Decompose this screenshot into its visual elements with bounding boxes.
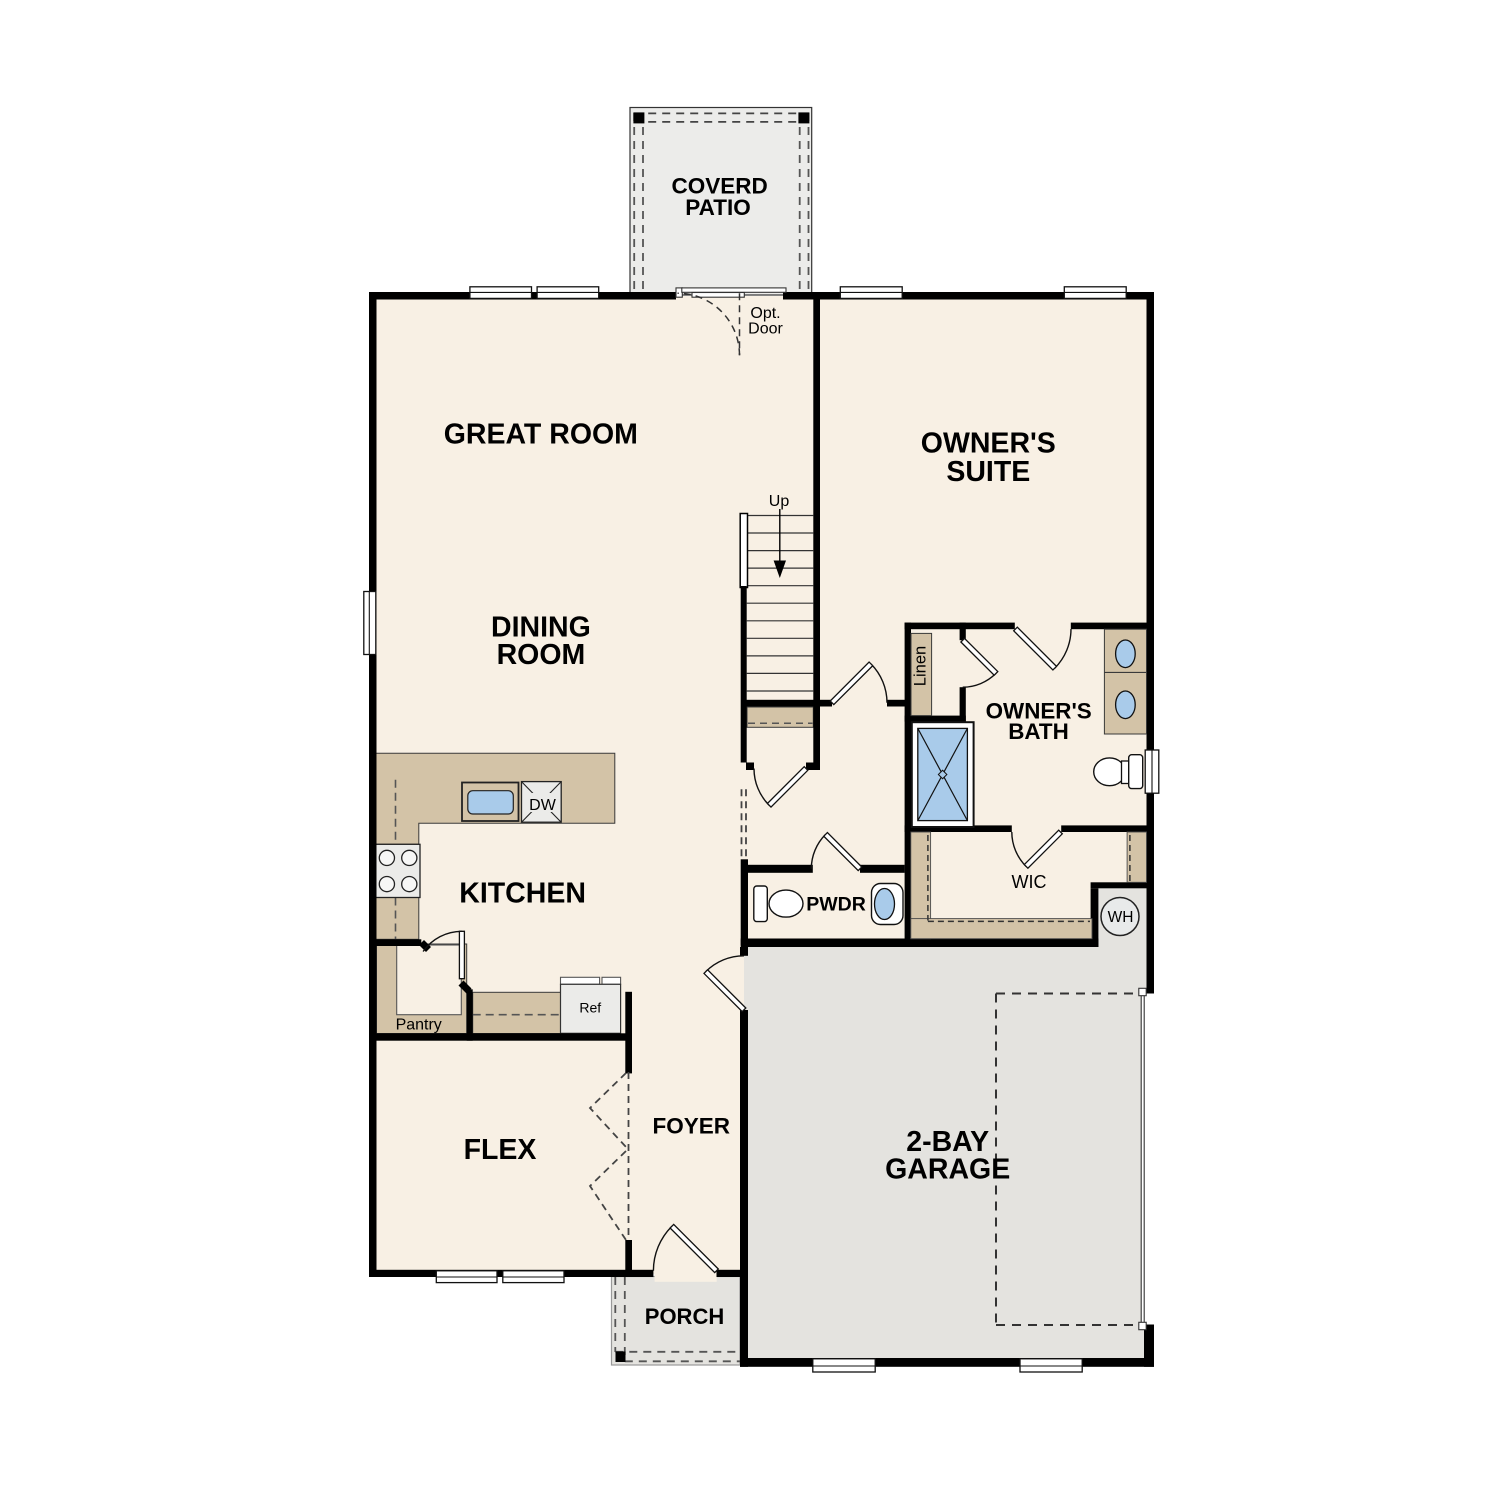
- svg-text:Door: Door: [748, 321, 783, 338]
- svg-text:ROOM: ROOM: [497, 639, 586, 671]
- svg-text:KITCHEN: KITCHEN: [459, 877, 586, 909]
- svg-text:Opt.: Opt.: [750, 305, 780, 322]
- svg-text:GREAT ROOM: GREAT ROOM: [444, 418, 638, 450]
- svg-text:PATIO: PATIO: [685, 195, 750, 220]
- svg-text:PWDR: PWDR: [806, 894, 866, 916]
- svg-text:OWNER'S: OWNER'S: [921, 427, 1056, 459]
- svg-text:BATH: BATH: [1008, 719, 1069, 744]
- svg-text:Ref: Ref: [579, 1000, 601, 1016]
- svg-text:GARAGE: GARAGE: [885, 1153, 1010, 1185]
- svg-text:FLEX: FLEX: [464, 1134, 537, 1166]
- svg-text:WH: WH: [1108, 909, 1134, 926]
- svg-text:DW: DW: [529, 797, 557, 814]
- svg-text:SUITE: SUITE: [946, 456, 1030, 488]
- svg-text:WIC: WIC: [1012, 872, 1047, 892]
- svg-text:PORCH: PORCH: [645, 1304, 724, 1329]
- svg-text:Up: Up: [769, 493, 790, 510]
- svg-text:Pantry: Pantry: [396, 1017, 442, 1034]
- svg-text:FOYER: FOYER: [653, 1114, 731, 1139]
- svg-text:Linen: Linen: [912, 646, 930, 686]
